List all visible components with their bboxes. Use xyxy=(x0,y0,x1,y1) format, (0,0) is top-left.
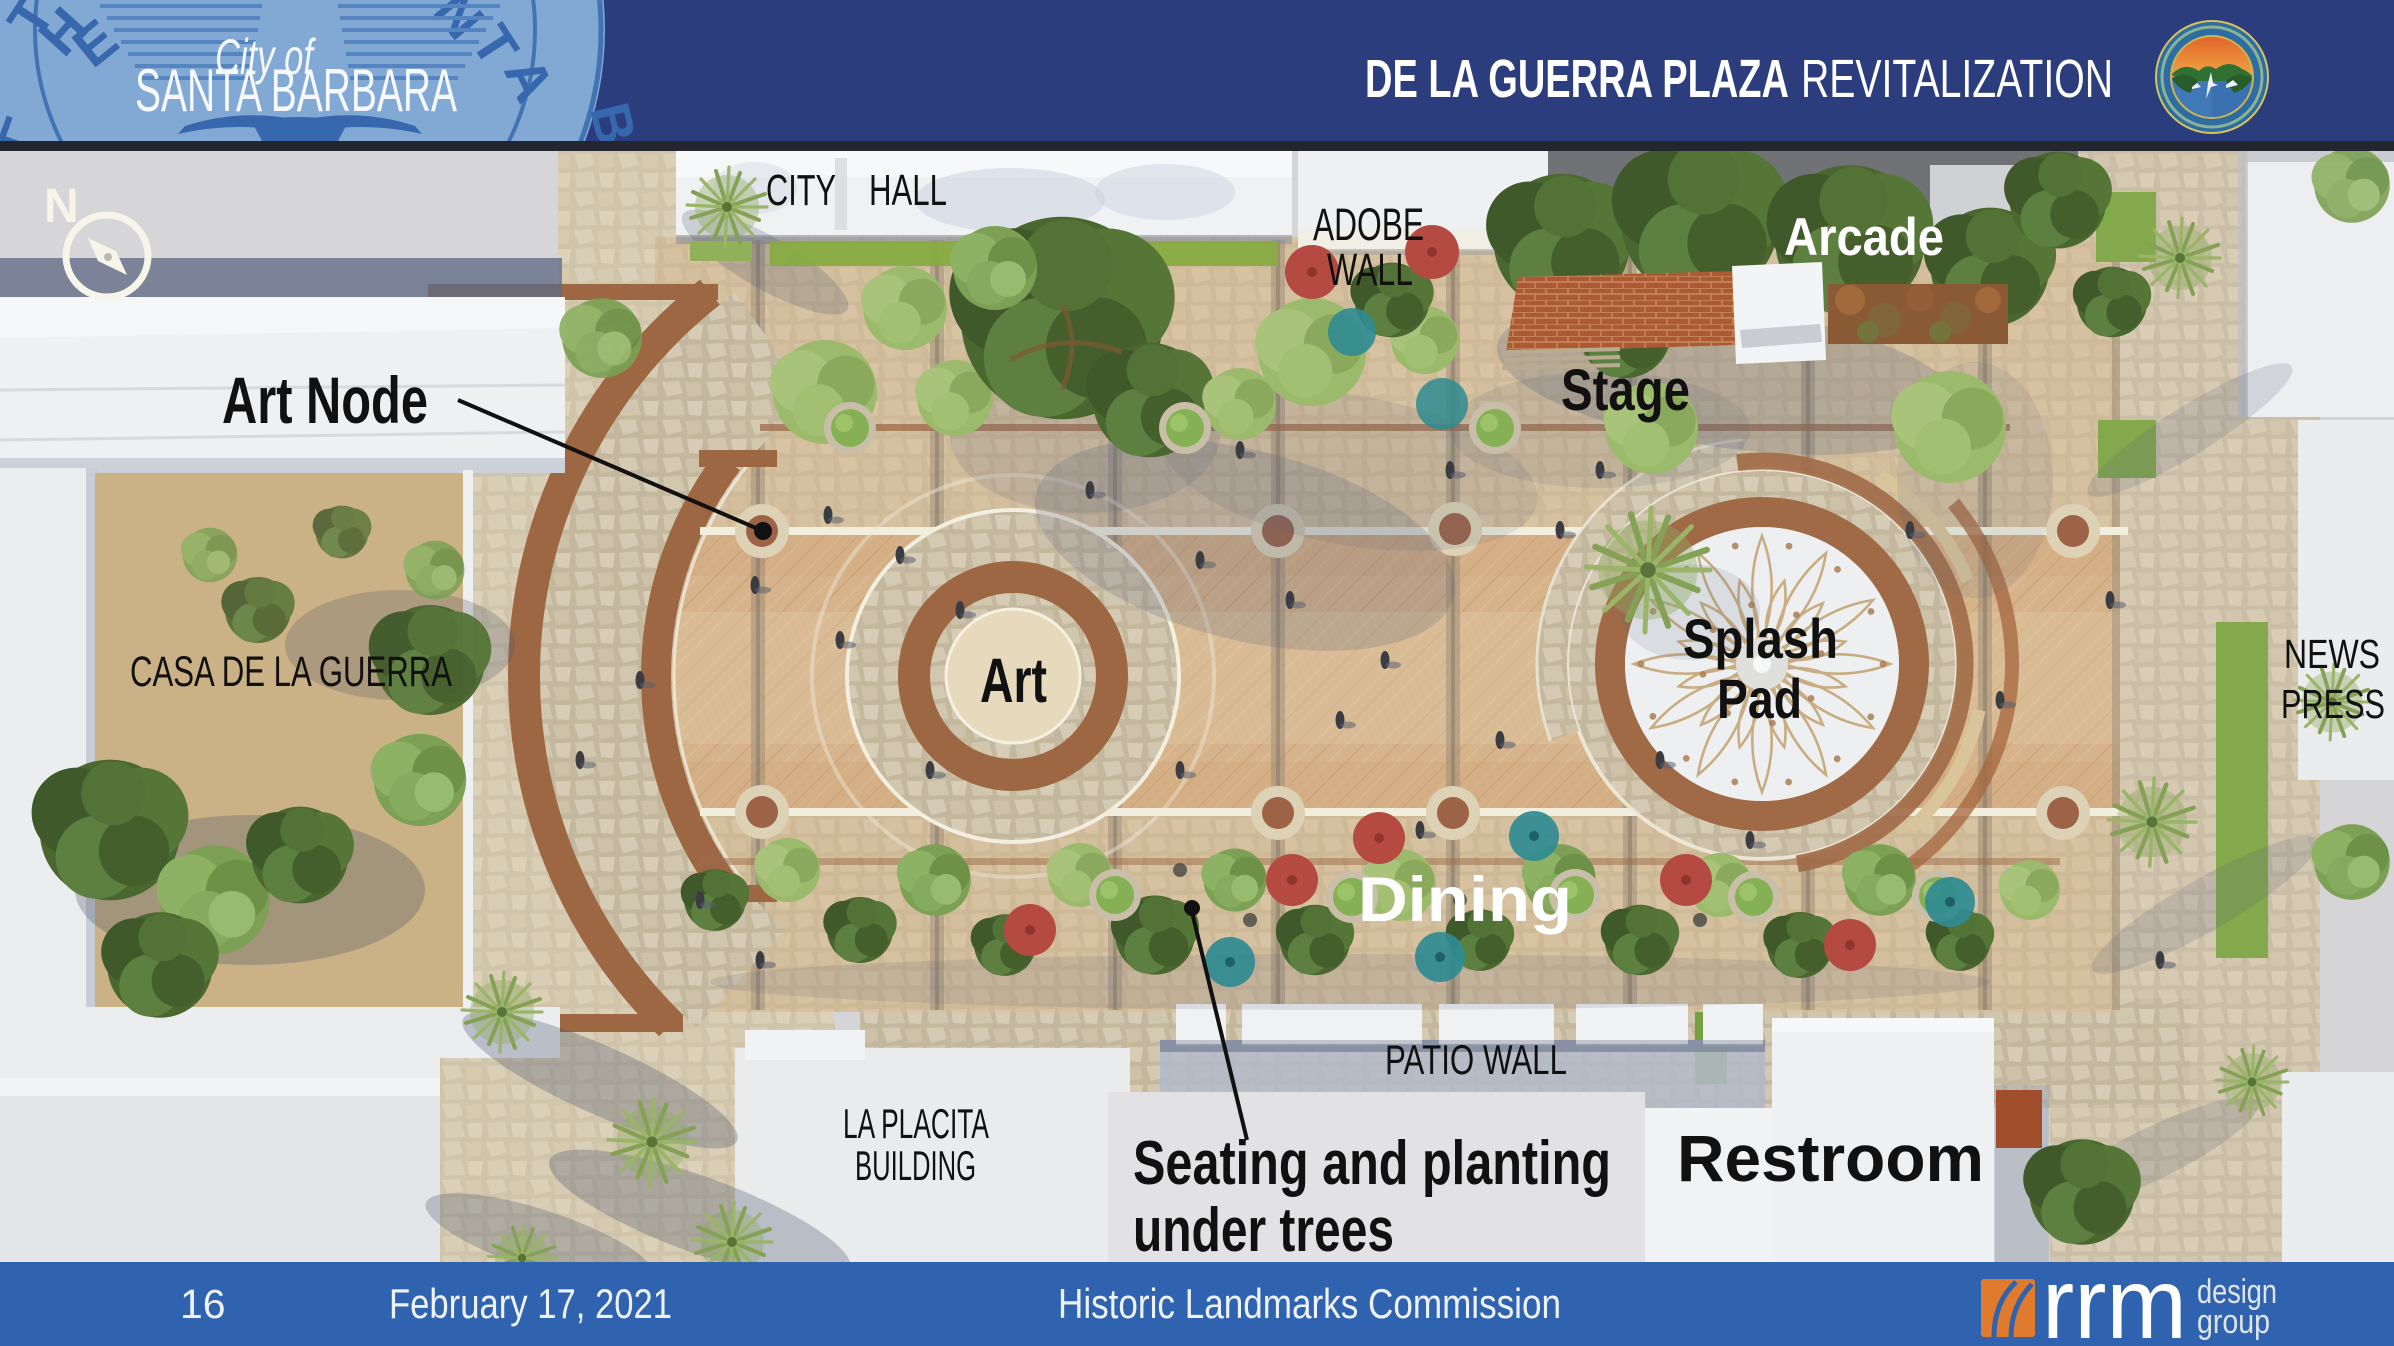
svg-text:Seating and planting: Seating and planting xyxy=(1133,1129,1611,1198)
svg-text:HALL: HALL xyxy=(869,166,947,215)
svg-text:Stage: Stage xyxy=(1561,358,1690,423)
svg-text:16: 16 xyxy=(180,1281,226,1327)
svg-text:Arcade: Arcade xyxy=(1784,208,1944,267)
svg-text:BUILDING: BUILDING xyxy=(855,1142,976,1189)
svg-text:CASA DE LA GUERRA: CASA DE LA GUERRA xyxy=(130,648,452,696)
svg-text:PRESS: PRESS xyxy=(2281,681,2385,727)
svg-text:rrm: rrm xyxy=(2042,1262,2187,1346)
svg-text:DE LA GUERRA PLAZA: DE LA GUERRA PLAZA xyxy=(1365,49,1789,109)
svg-text:Art: Art xyxy=(980,646,1047,716)
svg-text:NEWS: NEWS xyxy=(2284,631,2380,677)
svg-text:WALL: WALL xyxy=(1327,244,1413,295)
svg-text:LA PLACITA: LA PLACITA xyxy=(843,1100,989,1147)
svg-text:Historic Landmarks Commission: Historic Landmarks Commission xyxy=(1058,1280,1561,1327)
svg-text:February 17, 2021: February 17, 2021 xyxy=(389,1280,672,1327)
svg-text:N: N xyxy=(44,180,79,233)
svg-text:Splash: Splash xyxy=(1683,607,1838,670)
svg-text:Pad: Pad xyxy=(1717,667,1802,730)
svg-text:Restroom: Restroom xyxy=(1677,1121,1984,1195)
svg-text:CITY: CITY xyxy=(766,166,836,215)
svg-text:SANTA BARBARA: SANTA BARBARA xyxy=(135,57,457,124)
svg-text:REVITALIZATION: REVITALIZATION xyxy=(1801,49,2113,109)
svg-text:PATIO WALL: PATIO WALL xyxy=(1385,1036,1567,1083)
svg-text:group: group xyxy=(2197,1303,2270,1341)
svg-text:Art Node: Art Node xyxy=(222,363,428,437)
svg-text:under trees: under trees xyxy=(1133,1196,1394,1262)
svg-text:Dining: Dining xyxy=(1358,865,1572,935)
svg-text:ADOBE: ADOBE xyxy=(1313,199,1424,250)
